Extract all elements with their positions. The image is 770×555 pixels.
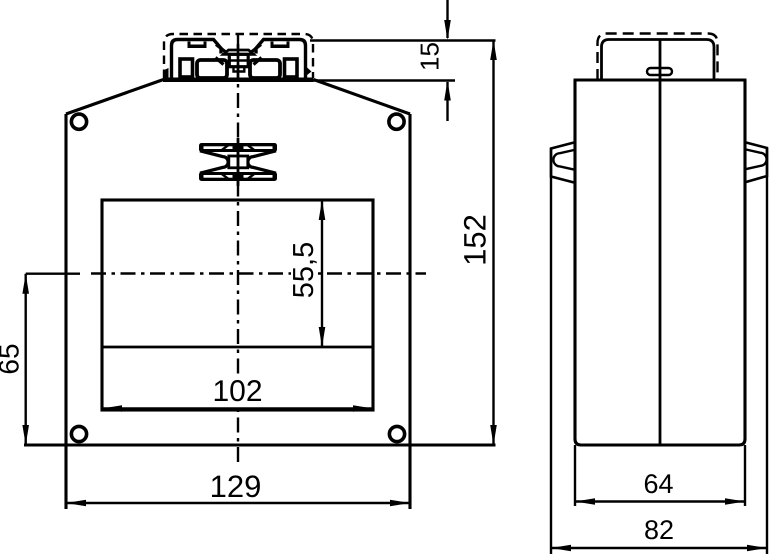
svg-text:82: 82 [644, 515, 674, 545]
svg-text:152: 152 [458, 214, 493, 266]
svg-text:55,5: 55,5 [288, 242, 320, 298]
svg-text:65: 65 [0, 343, 25, 374]
svg-text:15: 15 [415, 42, 445, 71]
svg-text:129: 129 [210, 469, 262, 504]
svg-text:102: 102 [212, 375, 262, 408]
svg-text:64: 64 [643, 469, 673, 499]
